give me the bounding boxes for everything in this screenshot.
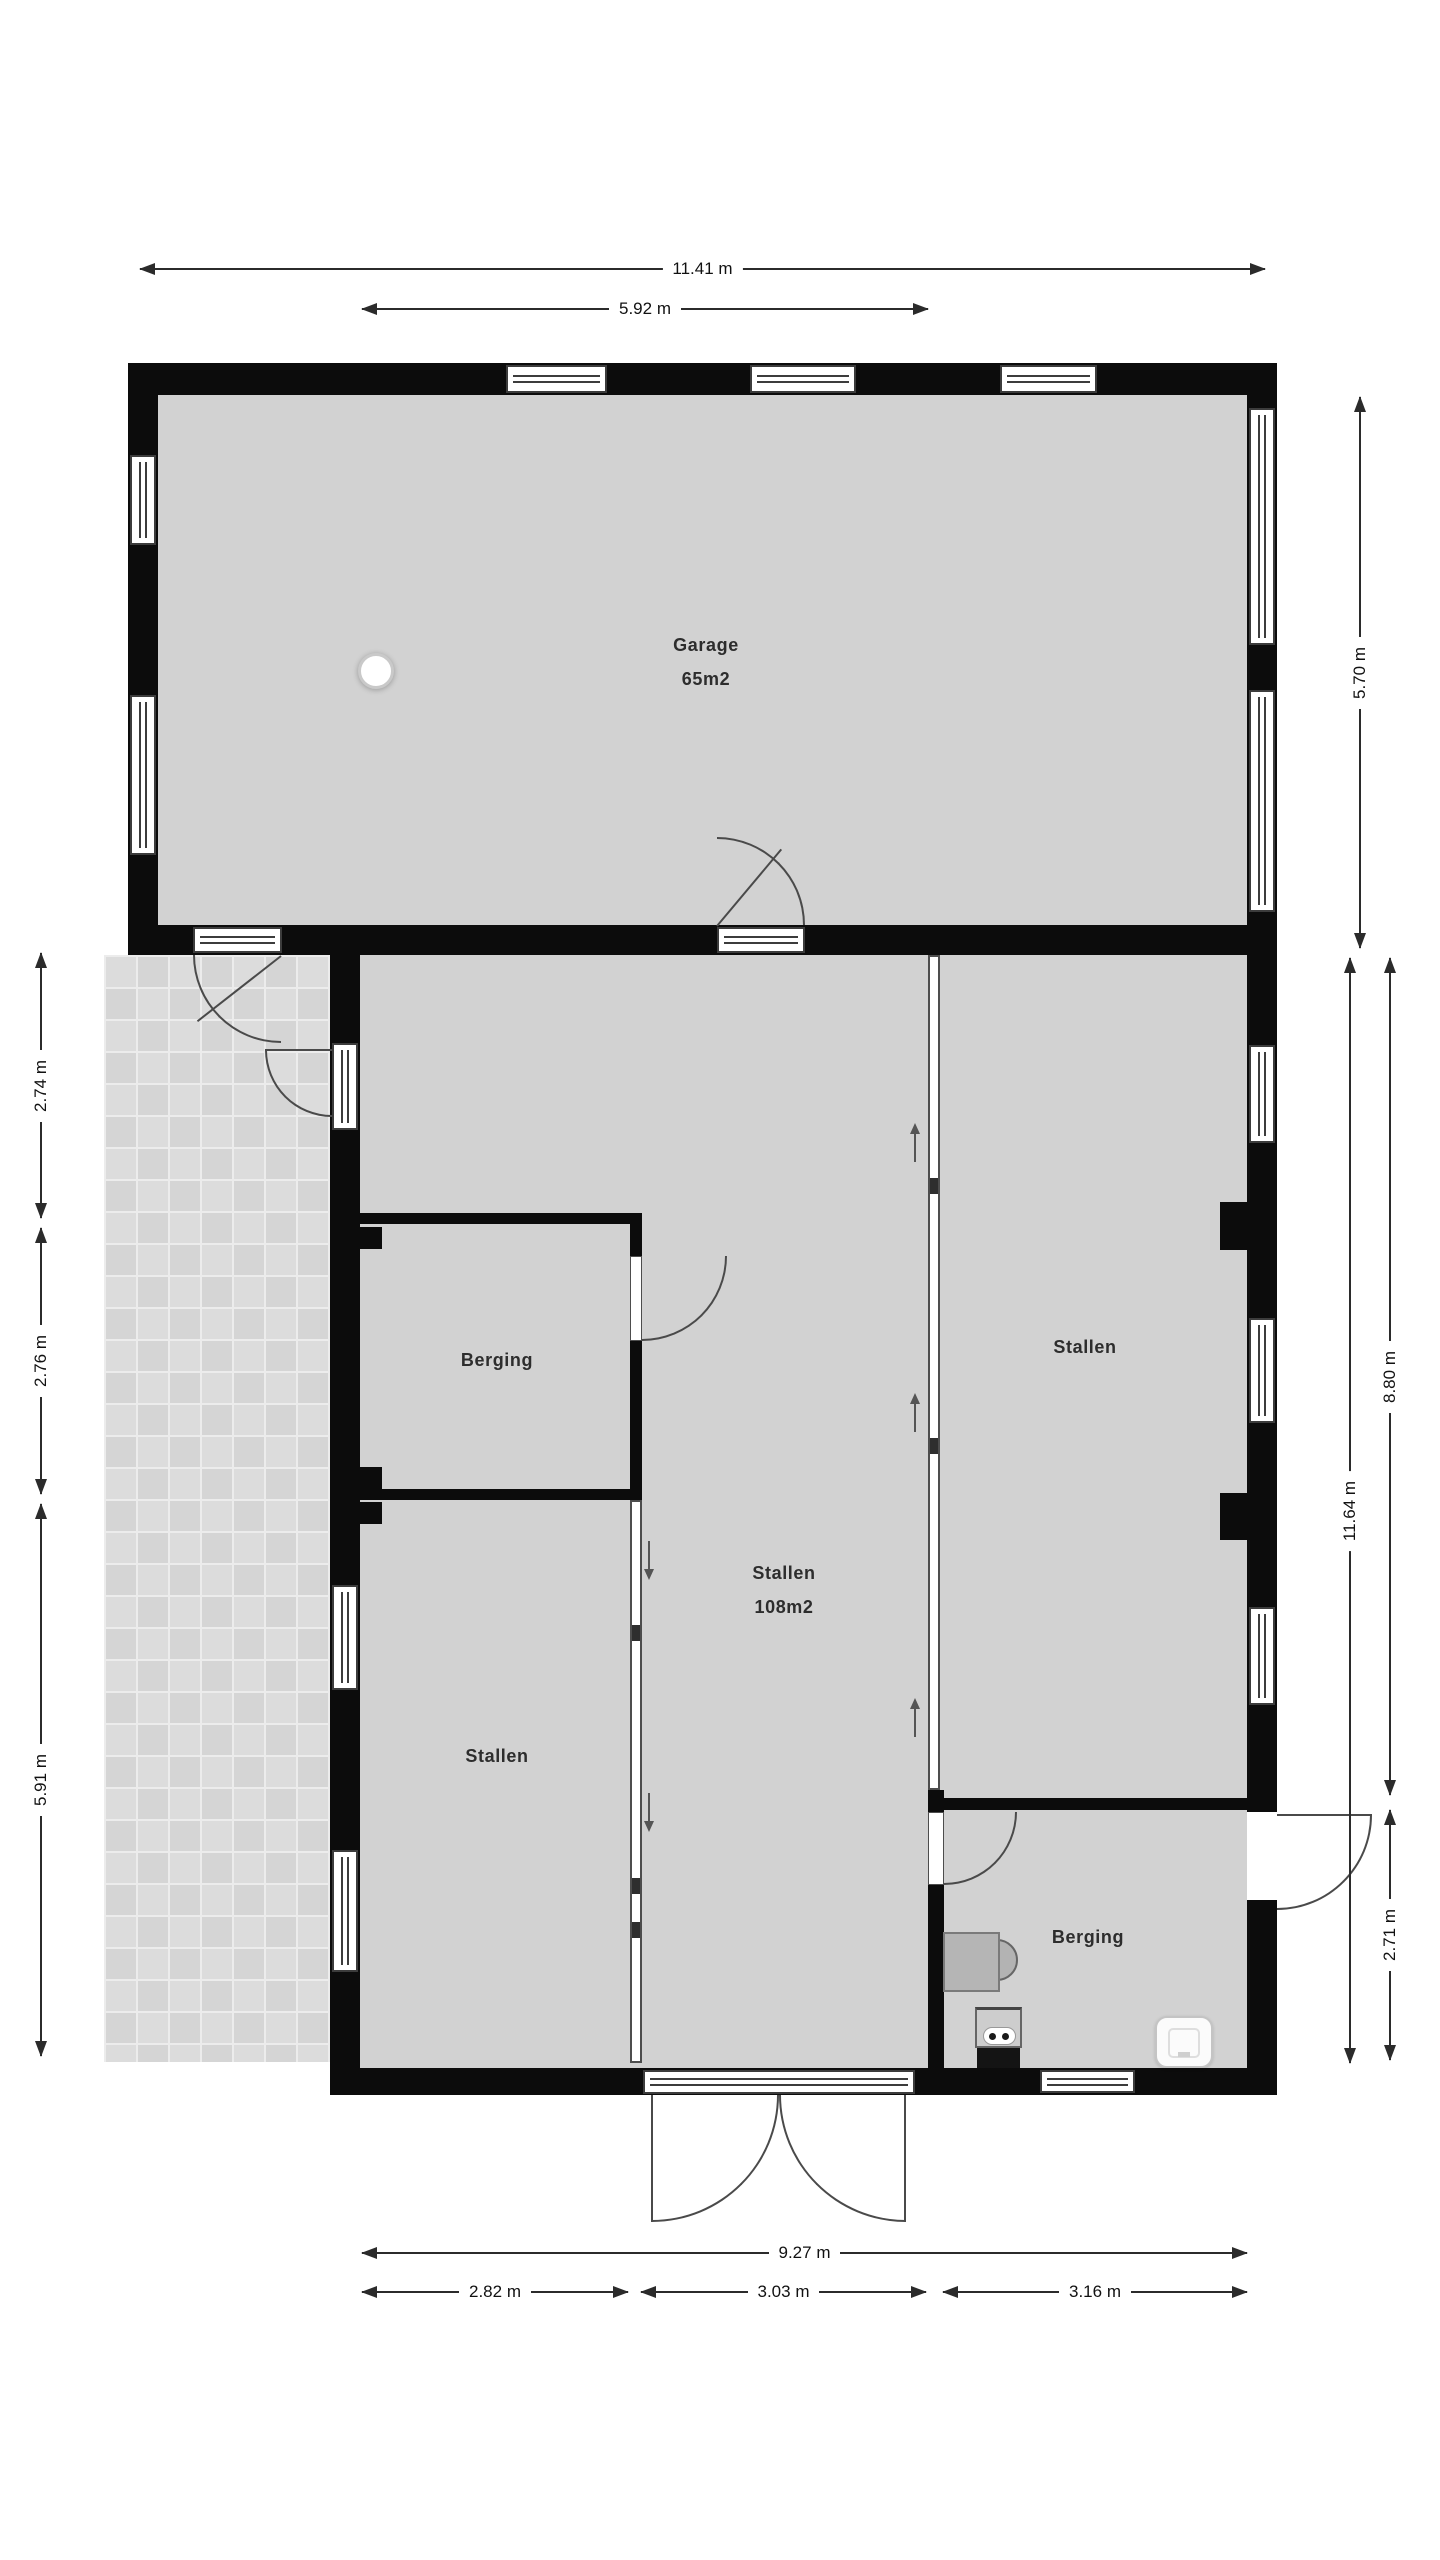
window — [130, 695, 156, 855]
berging-wall-bottom — [360, 1489, 642, 1500]
dim-left-bottom: 5.91 m — [40, 1504, 42, 2056]
ceiling-light-icon — [358, 653, 394, 689]
window — [1040, 2070, 1135, 2093]
window — [750, 365, 856, 393]
cabinet-block — [977, 2048, 1020, 2068]
room-label-berging-lower: Berging — [1052, 1920, 1124, 1954]
window — [1249, 1318, 1275, 1423]
door-leaf — [265, 1049, 332, 1051]
window — [130, 455, 156, 545]
window — [1249, 1045, 1275, 1143]
dim-right-total: 11.64 m — [1349, 958, 1351, 2063]
berging2-wall-left — [928, 1885, 944, 2068]
passage-arrow-up-icon — [914, 1125, 916, 1162]
corner-pillar — [360, 1227, 382, 1249]
dim-left-top: 2.74 m — [40, 953, 42, 1218]
garage-wall-top — [128, 363, 1277, 395]
terrace-patio — [104, 955, 330, 2062]
door-leaf — [1277, 1814, 1372, 1816]
dim-right-stallen: 8.80 m — [1389, 958, 1391, 1795]
door-swing-arc — [779, 2095, 906, 2222]
wall-pillar — [1220, 1493, 1247, 1540]
partition-joint — [930, 1438, 938, 1454]
window — [506, 365, 607, 393]
dim-right-berging: 2.71 m — [1389, 1810, 1391, 2060]
terrace-door — [332, 1043, 358, 1130]
dim-bottom-right: 3.16 m — [943, 2291, 1247, 2293]
partition-joint — [930, 1178, 938, 1194]
garage-stallen-door — [717, 927, 805, 953]
boiler-icon — [943, 1932, 1019, 1992]
passage-arrow-down-icon — [648, 1541, 650, 1578]
garage-wall-bottom — [128, 925, 1277, 955]
berging2-wall-top — [928, 1798, 1247, 1810]
window — [1249, 690, 1275, 912]
double-door-threshold — [643, 2070, 915, 2094]
stallen-floor — [360, 955, 1247, 2068]
room-label-garage: Garage 65m2 — [673, 628, 739, 696]
window — [1000, 365, 1097, 393]
room-label-stallen-center: Stallen 108m2 — [752, 1556, 815, 1624]
toilet-icon — [1155, 2016, 1213, 2068]
wall-junction — [928, 1790, 944, 1812]
partition-joint — [632, 1878, 640, 1894]
dim-bottom-total: 9.27 m — [362, 2252, 1247, 2254]
sliding-partition — [928, 955, 940, 1790]
dim-top-total: 11.41 m — [140, 268, 1265, 270]
wall-pillar — [1220, 1202, 1247, 1250]
window — [1249, 1607, 1275, 1705]
window — [1249, 408, 1275, 645]
berging-door — [630, 1256, 642, 1341]
dim-bottom-center: 3.03 m — [641, 2291, 926, 2293]
dim-left-middle: 2.76 m — [40, 1228, 42, 1494]
dim-bottom-left: 2.82 m — [362, 2291, 628, 2293]
passage-arrow-up-icon — [914, 1395, 916, 1432]
outlet-panel-icon — [975, 2007, 1022, 2048]
dim-top-inner: 5.92 m — [362, 308, 928, 310]
window — [332, 1585, 358, 1690]
berging-wall-top — [360, 1213, 642, 1224]
room-label-stallen-right: Stallen — [1053, 1330, 1116, 1364]
floor-plan: Garage 65m2 Berging Stallen Stallen 108m… — [0, 0, 1440, 2560]
room-label-berging-upper: Berging — [461, 1343, 533, 1377]
berging2-door — [928, 1812, 944, 1885]
garage-wall-left — [128, 363, 158, 955]
room-label-stallen-left: Stallen — [465, 1739, 528, 1773]
garage-terrace-door — [193, 927, 282, 953]
door-swing-arc — [652, 2095, 779, 2222]
door-swing-arc — [1277, 1815, 1372, 1910]
window — [332, 1850, 358, 1972]
corner-pillar — [360, 1467, 382, 1489]
passage-arrow-down-icon — [648, 1793, 650, 1830]
exterior-door — [1247, 1812, 1277, 1900]
partition-joint — [632, 1922, 640, 1938]
passage-arrow-up-icon — [914, 1700, 916, 1737]
corner-pillar — [360, 1502, 382, 1524]
partition-joint — [632, 1625, 640, 1641]
sliding-partition — [630, 1500, 642, 2063]
dim-right-garage: 5.70 m — [1359, 397, 1361, 948]
